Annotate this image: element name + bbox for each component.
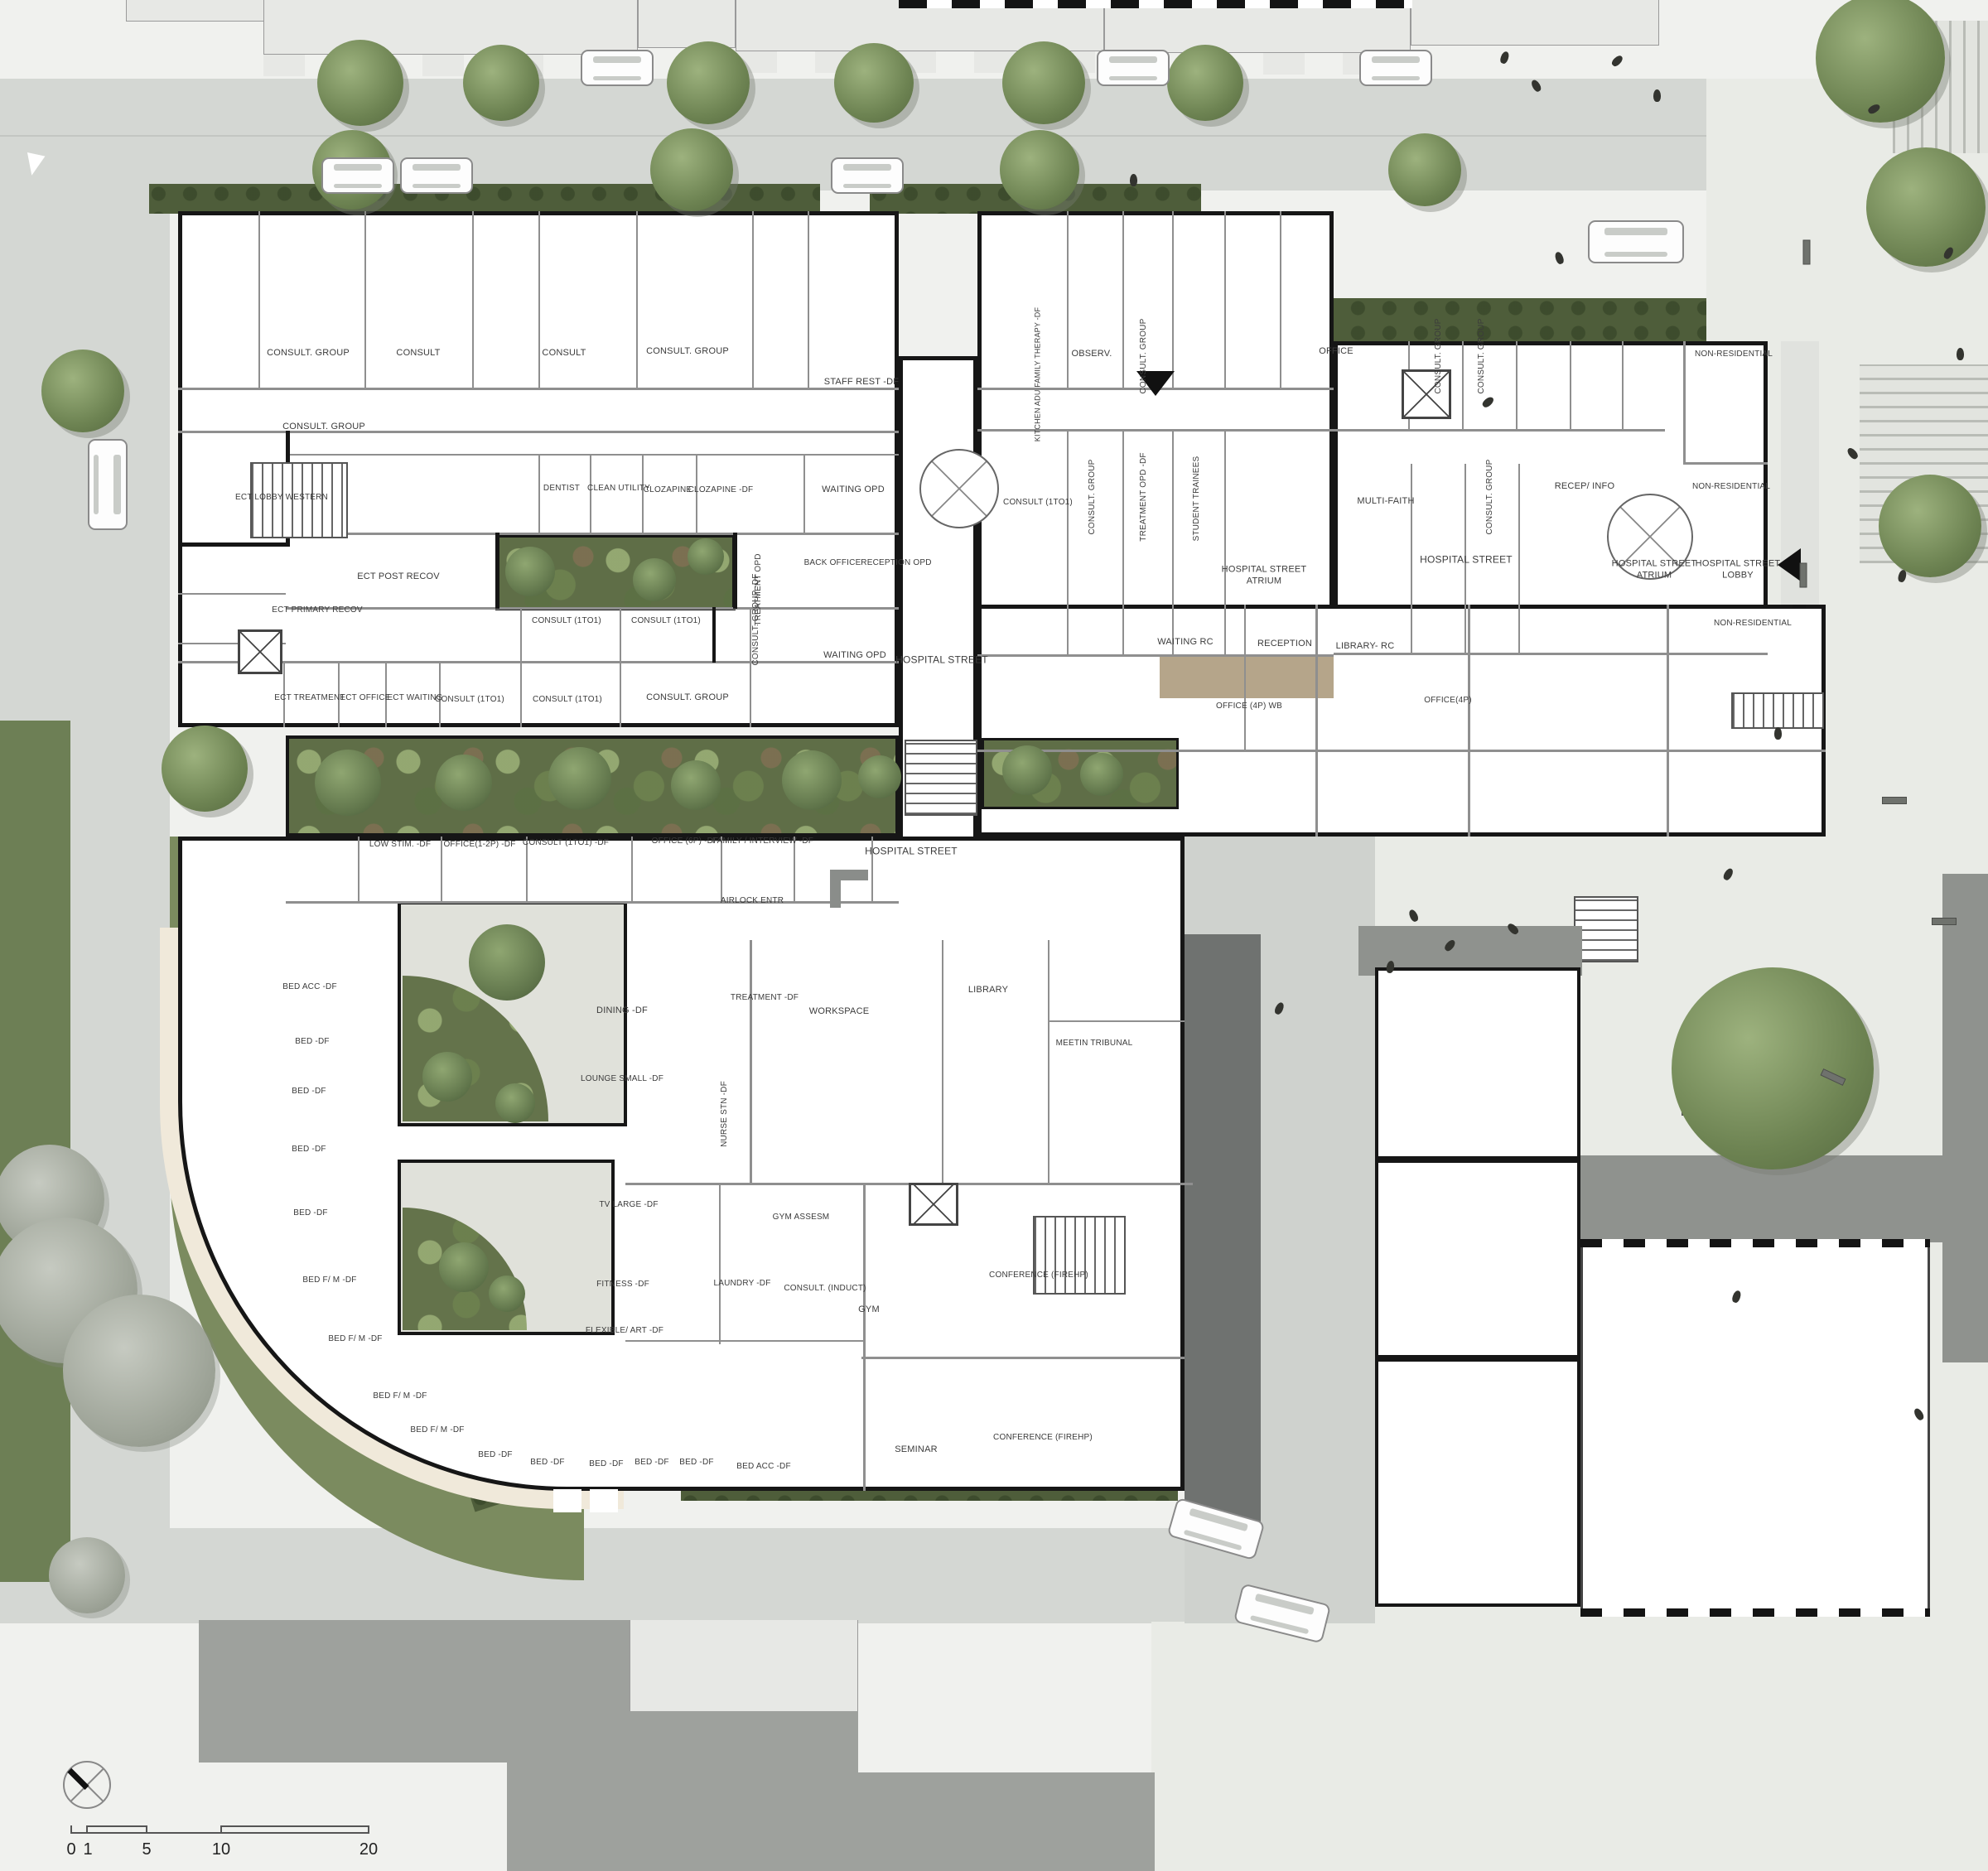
scale-bar: 0 1 5 10 20 bbox=[0, 0, 1988, 1871]
scale-tick bbox=[146, 1825, 147, 1834]
scale-tick bbox=[220, 1825, 222, 1834]
scale-number: 20 bbox=[359, 1840, 378, 1859]
scale-tick bbox=[86, 1825, 88, 1834]
scale-number: 0 bbox=[66, 1840, 75, 1859]
scale-number: 10 bbox=[212, 1840, 230, 1859]
site-plan: CONSULT. GROUPCONSULTCONSULTCONSULT. GRO… bbox=[0, 0, 1988, 1871]
scale-line bbox=[86, 1825, 146, 1827]
scale-tick bbox=[70, 1825, 72, 1834]
scale-number: 1 bbox=[83, 1840, 92, 1859]
scale-number: 5 bbox=[142, 1840, 151, 1859]
scale-tick bbox=[368, 1825, 369, 1834]
scale-line bbox=[70, 1832, 369, 1834]
scale-line bbox=[220, 1825, 369, 1827]
